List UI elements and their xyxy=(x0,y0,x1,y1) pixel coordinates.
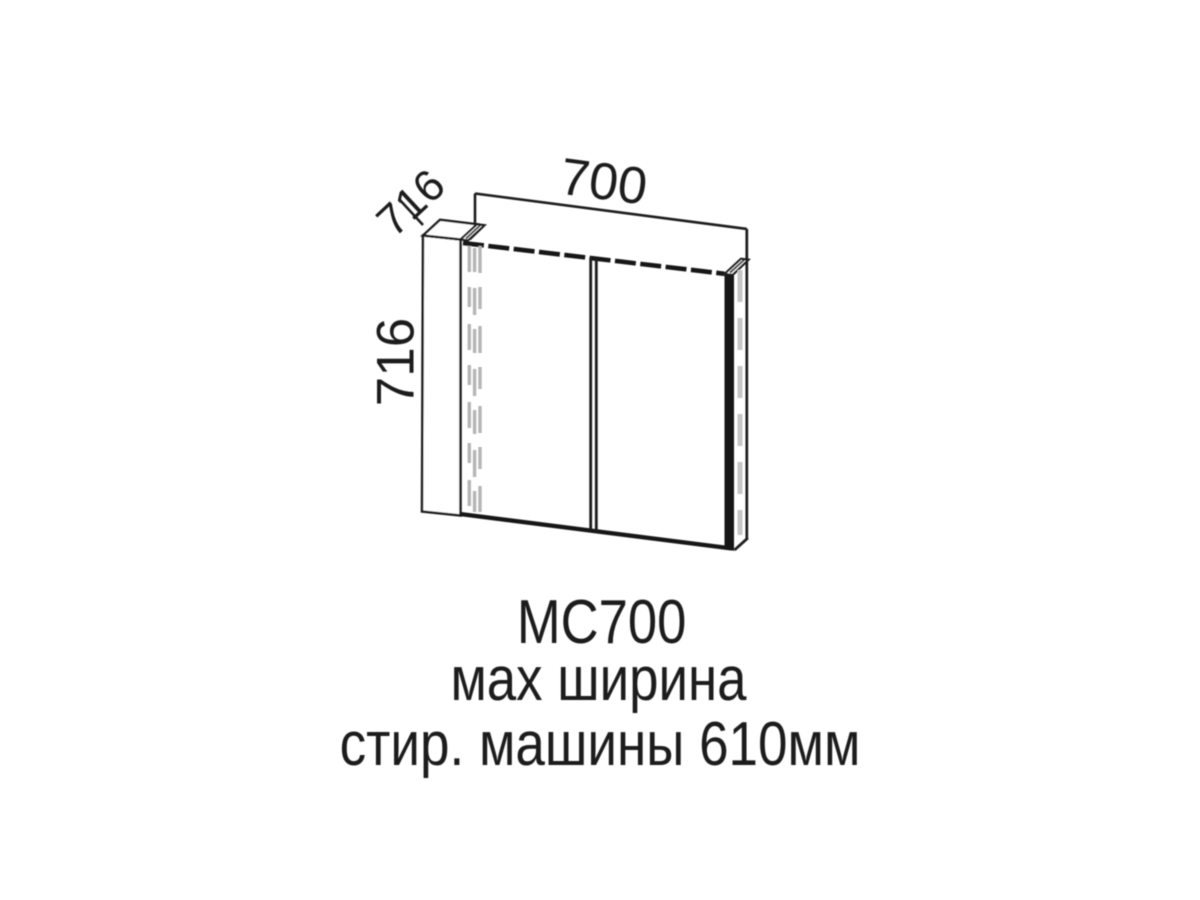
svg-text:716: 716 xyxy=(367,318,426,406)
svg-text:700: 700 xyxy=(557,148,651,217)
svg-text:стир. машины 610мм: стир. машины 610мм xyxy=(340,710,861,779)
svg-text:мах ширина: мах ширина xyxy=(450,645,747,714)
